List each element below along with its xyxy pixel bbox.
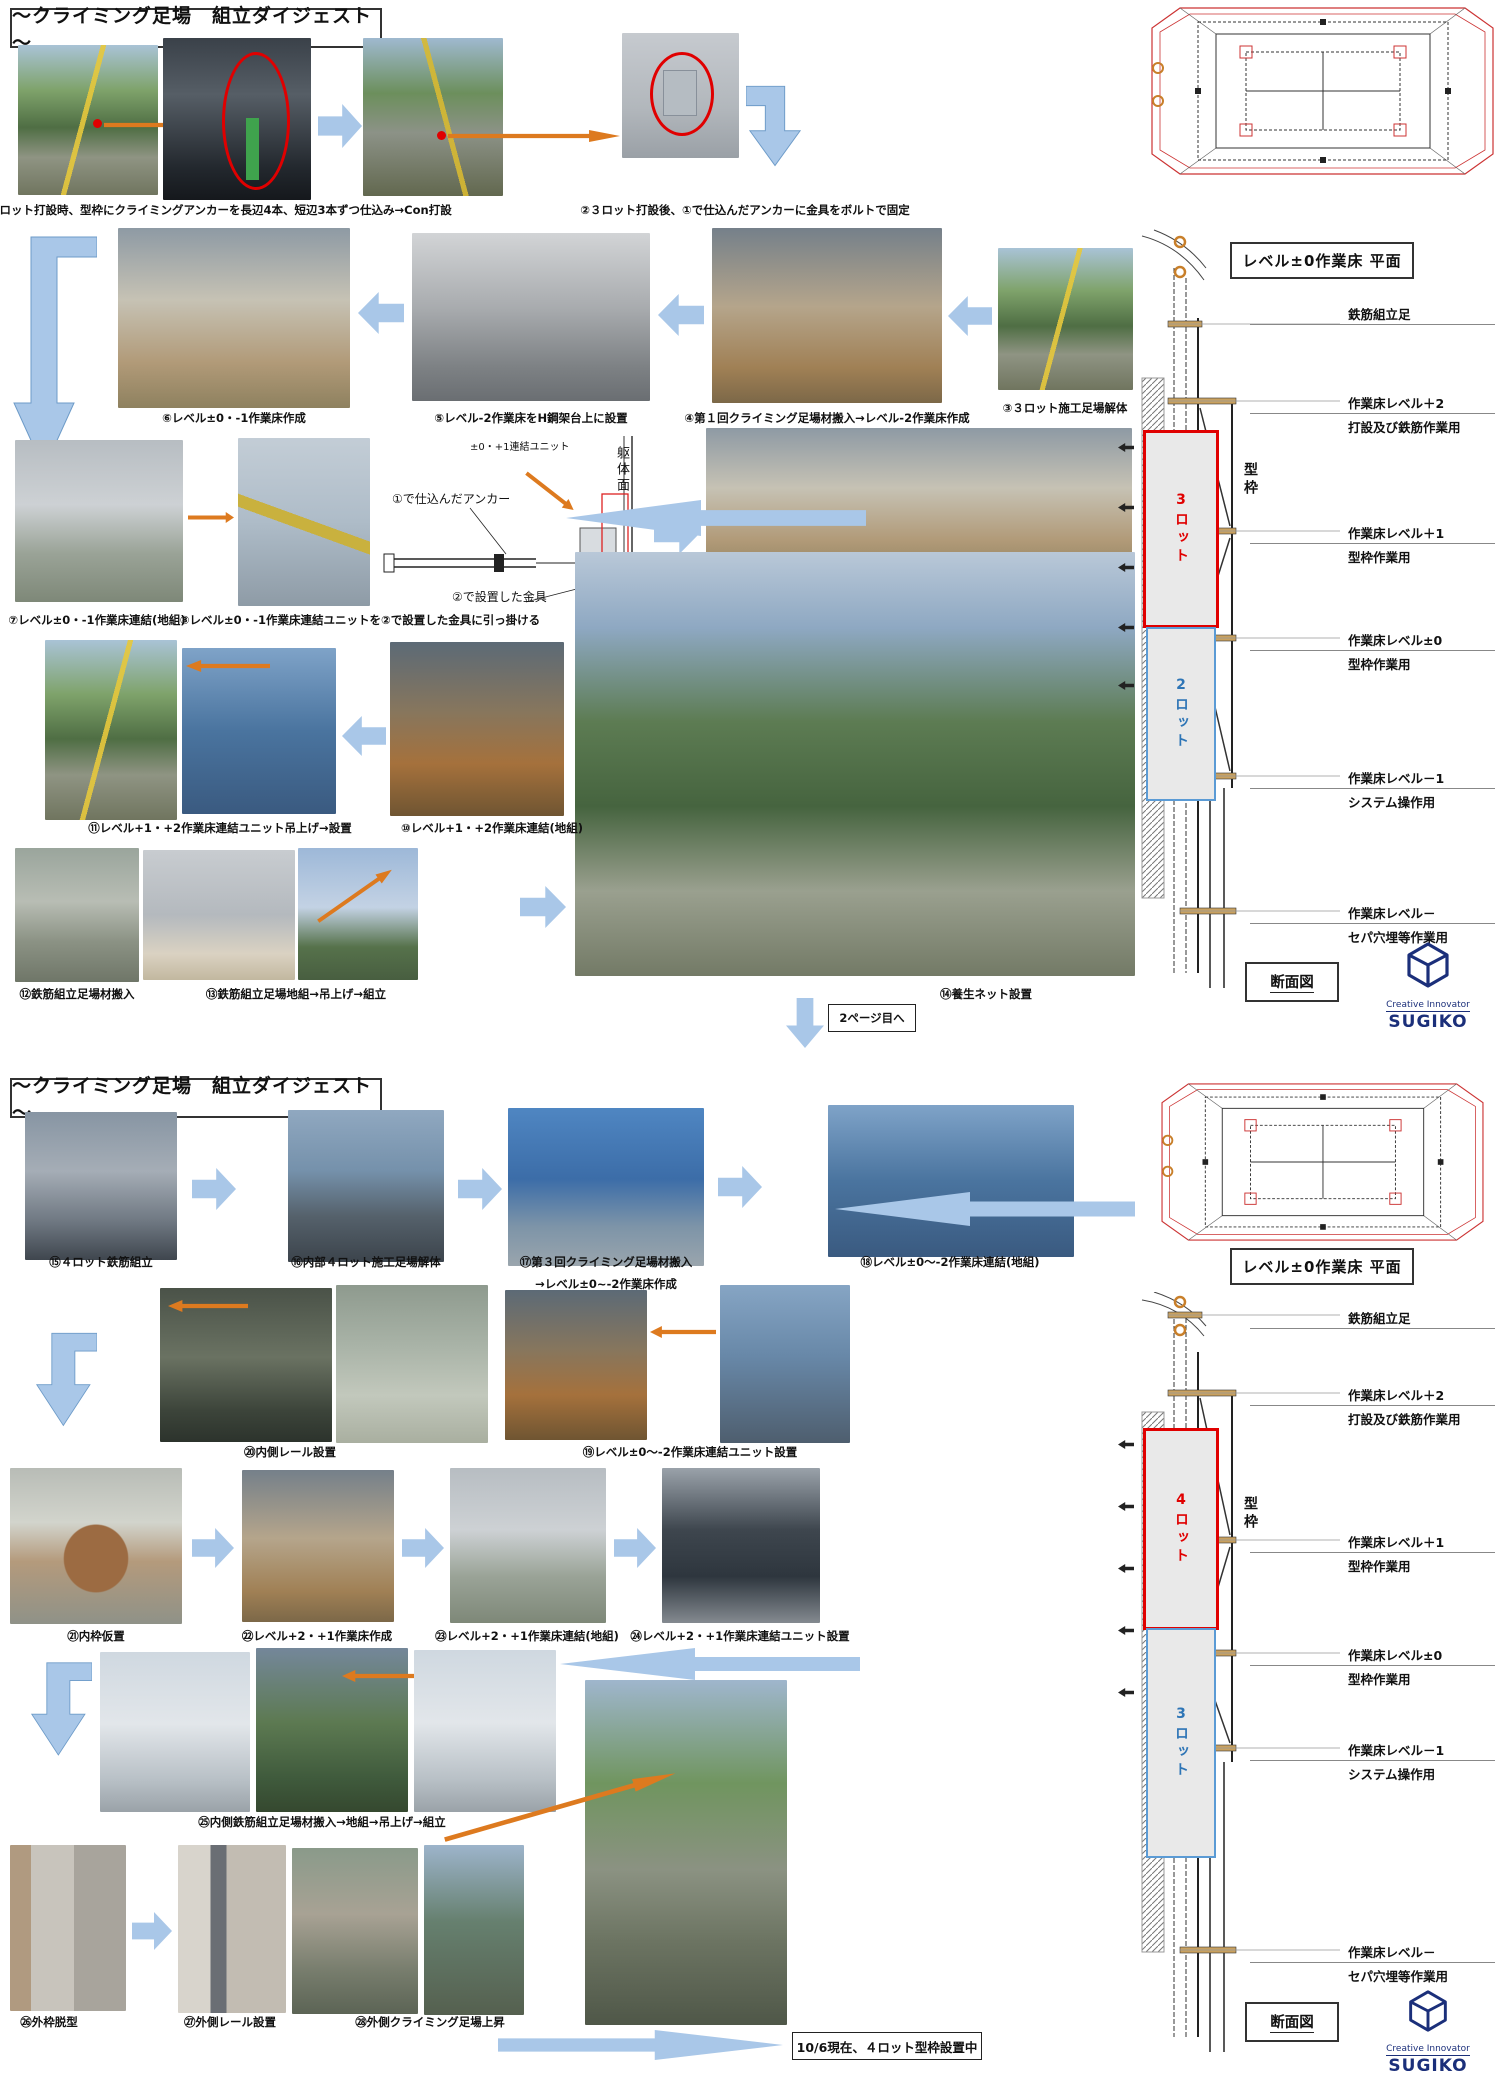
caption: ⑥レベル±0・-1作業床作成 (162, 410, 306, 426)
sugiko-logo: Creative Innovator SUGIKO (1378, 1990, 1478, 2076)
photo-11a (45, 640, 177, 820)
section-title-2-text: 断面図 (1270, 2011, 1314, 2033)
leader-line (1250, 1328, 1495, 1329)
photo-20b (336, 1285, 488, 1443)
flow-arrow-right-icon (318, 104, 362, 148)
caption: ⑧レベル±0・-1作業床連結ユニットを②で設置した金具に引っ掛ける (180, 612, 540, 628)
photo-02a (363, 38, 503, 196)
elbow-arrow-down-icon (35, 1326, 97, 1431)
photo-22 (242, 1470, 394, 1622)
level-label: 作業床レベル＋1 (1348, 523, 1444, 542)
level-use-label: 型枠作業用 (1348, 654, 1411, 673)
level-label: 作業床レベル－ (1348, 1942, 1436, 1961)
caption: ⑮４ロット鉄筋組立 (49, 1254, 153, 1270)
diagram-anchor-label: ①で仕込んだアンカー (392, 490, 510, 507)
leader-line (1250, 1405, 1495, 1406)
anchor-arrow-icon (1118, 1626, 1134, 1635)
frame-label-2: 型枠 (1240, 1496, 1260, 1532)
level-label: 鉄筋組立足 (1348, 1308, 1411, 1327)
flow-arrow-right-long-icon (498, 2030, 783, 2060)
leader-line (1250, 1665, 1495, 1666)
photo-10 (390, 642, 564, 816)
flow-arrow-right-icon (402, 1528, 444, 1568)
level-use-label: 型枠作業用 (1348, 1556, 1411, 1575)
level-use-label: 打設及び鉄筋作業用 (1348, 417, 1461, 436)
anchor-arrow-icon (1118, 1688, 1134, 1697)
cube-icon (1405, 942, 1451, 988)
leader-line (1250, 1760, 1495, 1761)
plan-title-2-text: レベル±0作業床 平面 (1242, 1256, 1401, 1277)
level-label: 作業床レベル±0 (1348, 1645, 1442, 1664)
flow-arrow-right-icon (520, 886, 566, 928)
photo-28c (424, 1845, 524, 2015)
lot-box-upper-1-text: 3ロット (1171, 492, 1191, 566)
photo-13b (298, 848, 418, 980)
caption: ⑳内側レール設置 (244, 1444, 336, 1460)
photo-28a (292, 1848, 418, 2014)
photo-23 (450, 1468, 606, 1623)
caption: ⑭養生ネット設置 (940, 986, 1032, 1002)
anchor-arrow-icon (1118, 1564, 1134, 1573)
photo-06 (118, 228, 350, 408)
level-use-label: 打設及び鉄筋作業用 (1348, 1409, 1461, 1428)
elbow-arrow-down-icon (30, 1658, 92, 1758)
photo-13a (143, 850, 295, 980)
flow-arrow-right-icon (132, 1912, 172, 1950)
photo-04 (712, 228, 942, 403)
caption: ㉒レベル+2・+1作業床作成 (242, 1628, 392, 1644)
lot-box-upper-2: 4ロット (1143, 1428, 1219, 1630)
leader-line (1250, 543, 1495, 544)
flow-arrow-left-icon (358, 292, 404, 334)
photo-28b (585, 1680, 787, 2025)
flow-arrow-right-icon (192, 1528, 234, 1568)
flow-arrow-left-long-icon (560, 1648, 860, 1680)
level-use-label: セパ穴埋等作業用 (1348, 1966, 1448, 1985)
section-title-2: 断面図 (1245, 2002, 1339, 2042)
photo-05 (412, 233, 650, 401)
highlight-ellipse (650, 52, 714, 136)
level-label: 作業床レベル±0 (1348, 630, 1442, 649)
photo-19b (720, 1285, 850, 1443)
level-label: 作業床レベル＋1 (1348, 1532, 1444, 1551)
photo-24 (662, 1468, 820, 1623)
logo-name: SUGIKO (1378, 1012, 1478, 1032)
caption: ⑯内部４ロット施工足場解体 (291, 1254, 441, 1270)
flow-arrow-left-icon (342, 716, 386, 756)
photo-15 (25, 1112, 177, 1260)
elbow-arrow-down-icon (746, 80, 804, 168)
photo-19a (505, 1290, 647, 1440)
leader-line (1250, 788, 1495, 789)
photo-03 (998, 248, 1133, 390)
photo-12 (15, 848, 139, 982)
flow-arrow-right-icon (458, 1168, 502, 1210)
photo-01a (18, 45, 158, 195)
caption: ③３ロット施工足場解体 (1003, 400, 1128, 416)
photo-27 (178, 1845, 286, 2013)
section-title-1: 断面図 (1245, 962, 1339, 1002)
caption: ㉗外側レール設置 (184, 2014, 276, 2030)
level-label: 作業床レベル－ (1348, 903, 1436, 922)
logo-tagline: Creative Innovator (1386, 1000, 1470, 1012)
caption: ⑰第３回クライミング足場材搬入 (520, 1254, 693, 1270)
flow-arrow-right-icon (718, 1166, 762, 1208)
logo-tagline: Creative Innovator (1386, 2044, 1470, 2056)
caption: ㉓レベル+2・+1作業床連結(地組) (435, 1628, 619, 1644)
photo-07 (15, 440, 183, 602)
section-title-1-text: 断面図 (1270, 971, 1314, 993)
photo-25b (256, 1648, 408, 1812)
sugiko-logo: Creative Innovator SUGIKO (1378, 942, 1478, 1032)
flow-arrow-right-icon (192, 1168, 236, 1210)
lot-box-lower-2: 3ロット (1146, 1628, 1216, 1858)
caption: ㉑内枠仮置 (67, 1628, 125, 1644)
level-label: 作業床レベル＋2 (1348, 1385, 1444, 1404)
leader-line (1250, 413, 1495, 414)
caption: ⑪レベル+1・+2作業床連結ユニット吊上げ→設置 (88, 820, 351, 836)
caption: ㉔レベル+2・+1作業床連結ユニット設置 (630, 1628, 849, 1644)
plan-drawing-1 (1150, 5, 1495, 177)
flow-arrow-down-icon (786, 998, 824, 1048)
leader-line (1250, 324, 1495, 325)
diagram-wall-label: 躯体面 (612, 446, 631, 494)
photo-14 (575, 552, 1135, 976)
level-label: 作業床レベル＋2 (1348, 393, 1444, 412)
level-use-label: システム操作用 (1348, 792, 1435, 811)
lot-box-upper-2-text: 4ロット (1171, 1492, 1191, 1566)
caption: ⑲レベル±0～-2作業床連結ユニット設置 (583, 1444, 797, 1460)
photo-25c (414, 1650, 556, 1812)
level-use-label: 型枠作業用 (1348, 1669, 1411, 1688)
leader-line (1250, 1552, 1495, 1553)
level-use-label: システム操作用 (1348, 1764, 1435, 1783)
flow-arrow-right-icon (614, 1528, 656, 1568)
plan-title-2: レベル±0作業床 平面 (1230, 1248, 1414, 1285)
anchor-arrow-icon (1118, 1440, 1134, 1449)
caption: ⑦レベル±0・-1作業床連結(地組) (8, 612, 185, 628)
plan-drawing-2 (1150, 1082, 1495, 1242)
caption: ㉕内側鉄筋組立足場材搬入→地組→吊上げ→組立 (198, 1814, 445, 1830)
flow-arrow-left-icon (948, 296, 992, 336)
caption: ㉖外枠脱型 (20, 2014, 78, 2030)
level-label: 作業床レベル－1 (1348, 768, 1444, 787)
level-label: 作業床レベル－1 (1348, 1740, 1444, 1759)
photo-11b (182, 648, 336, 814)
flow-arrow-left-icon (658, 294, 704, 336)
diagram-bracket-label: ②で設置した金具 (452, 588, 547, 605)
lot-box-lower-2-text: 3ロット (1171, 1706, 1191, 1780)
photo-17 (508, 1108, 704, 1266)
level-use-label: 型枠作業用 (1348, 547, 1411, 566)
caption: ⑬鉄筋組立足場地組→吊上げ→組立 (206, 986, 386, 1002)
highlight-ellipse (222, 52, 290, 190)
logo-name: SUGIKO (1378, 2056, 1478, 2076)
next-page-link[interactable]: 2ページ目へ (828, 1004, 916, 1032)
caption: ⑫鉄筋組立足場材搬入 (20, 986, 135, 1002)
level-label: 鉄筋組立足 (1348, 304, 1411, 323)
caption: ⑱レベル±0～-2作業床連結(地組) (861, 1254, 1040, 1270)
caption: ⑤レベル-2作業床をH鋼架台上に設置 (434, 410, 627, 426)
highlight-arrow-icon (188, 512, 234, 523)
photo-26 (10, 1845, 126, 2011)
photo-16 (288, 1110, 444, 1262)
cube-icon (1407, 1990, 1449, 2032)
elbow-arrow-down-icon (12, 233, 97, 473)
caption: ㉘外側クライミング足場上昇 (355, 2014, 505, 2030)
photo-25a (100, 1652, 250, 1812)
highlight-arrow-icon (650, 1326, 716, 1338)
leader-line (1250, 923, 1495, 924)
photo-20a (160, 1288, 332, 1442)
digest-page: ～クライミング足場 組立ダイジェスト～ ①２ロット打設時、型枠にクライミングアン… (0, 0, 1500, 2076)
anchor-arrow-icon (1118, 1502, 1134, 1511)
diagram-unit-label: ±0・+1連結ユニット (470, 438, 569, 453)
leader-line (1250, 650, 1495, 651)
status-note: 10/6現在、４ロット型枠設置中 (792, 2032, 982, 2060)
photo-08 (238, 438, 370, 606)
photo-18 (828, 1105, 1074, 1257)
photo-21 (10, 1468, 182, 1624)
frame-label-1: 型枠 (1240, 462, 1260, 498)
anchor-dot (437, 131, 446, 140)
caption: ①２ロット打設時、型枠にクライミングアンカーを長辺4本、短辺3本ずつ仕込み→Co… (0, 202, 452, 218)
lot-box-upper-1: 3ロット (1143, 430, 1219, 628)
caption: ④第１回クライミング足場材搬入→レベル-2作業床作成 (684, 410, 969, 426)
lot-box-lower-1-text: 2ロット (1171, 677, 1191, 751)
caption: ②３ロット打設後、①で仕込んだアンカーに金具をボルトで固定 (580, 202, 910, 218)
lot-box-lower-1: 2ロット (1146, 627, 1216, 801)
anchor-dot (93, 119, 102, 128)
caption: ⑩レベル+1・+2作業床連結(地組) (401, 820, 583, 836)
leader-line (1250, 1962, 1495, 1963)
